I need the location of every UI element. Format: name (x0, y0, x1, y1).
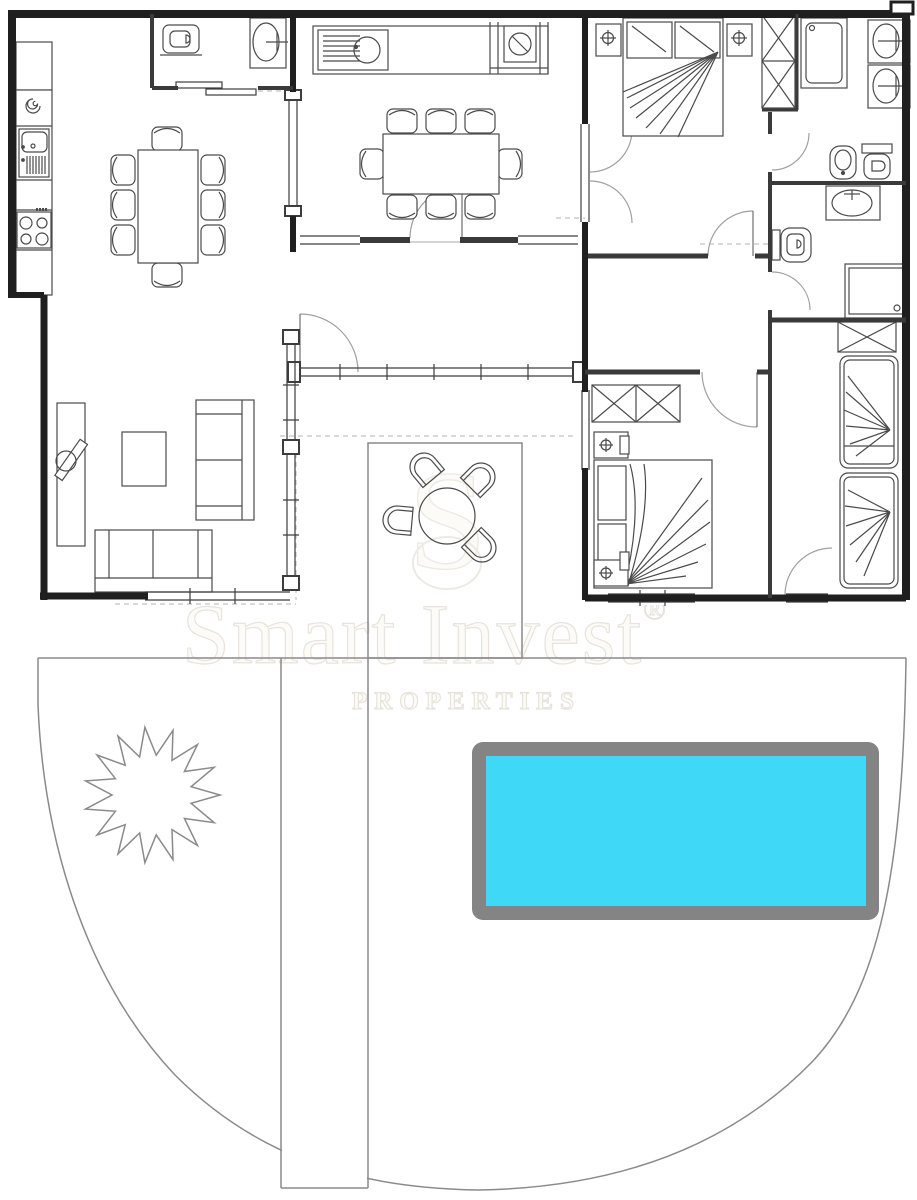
bedroom2-door (702, 372, 757, 427)
toilet-top-icon (862, 144, 892, 179)
patio-door (300, 314, 358, 372)
nightstand-left (596, 24, 621, 56)
doors (300, 130, 832, 595)
dining-table (138, 150, 198, 263)
shower-icon (801, 18, 847, 88)
kitchen-counter (16, 42, 52, 295)
master-double-door (590, 130, 632, 223)
counter-middle (313, 22, 548, 74)
swimming-pool (472, 742, 879, 920)
toilet-middle-icon (772, 228, 811, 262)
nightstand2-top (594, 432, 629, 458)
single-bed-1 (840, 356, 898, 468)
master-entry-door (708, 211, 753, 256)
dining-set-middle (360, 109, 522, 219)
wash-basin-icon (250, 18, 288, 68)
wardrobe-kids (838, 322, 896, 352)
shower-middle-icon (845, 264, 907, 318)
wc-fixtures (160, 18, 288, 68)
walkway (281, 658, 368, 1188)
floor-plan-drawing (0, 0, 917, 1200)
bedroom2-furniture (592, 385, 712, 588)
bathroom-top-door (772, 133, 809, 170)
vanity-icon (826, 186, 880, 220)
kitchen-sink-icon (19, 129, 49, 177)
sofa-right (196, 400, 254, 520)
floor-plan-canvas: S Smart Invest® PROPERTIES (0, 0, 917, 1200)
bathroom-top-fixtures (801, 18, 910, 179)
coffee-table (122, 432, 166, 486)
toilet-icon (160, 25, 202, 55)
window-hall-south (288, 362, 585, 382)
wardrobe-master (762, 15, 795, 108)
kids-room-door (785, 548, 832, 595)
bathroom-middle-fixtures (772, 186, 907, 318)
round-table (419, 488, 475, 544)
window-partition (285, 90, 301, 216)
window-bedroom2-west (579, 390, 591, 470)
dining-table-2 (383, 134, 499, 194)
tree-icon (86, 727, 221, 862)
bathroom-middle-door (772, 272, 810, 310)
window-master-west (581, 124, 589, 222)
cooktop-icon (17, 208, 51, 248)
master-bedroom-furniture (596, 15, 795, 137)
sofa-bottom (95, 530, 212, 592)
furniture (16, 15, 910, 592)
pool-water (486, 756, 866, 906)
wardrobe-bedroom2 (592, 385, 680, 422)
watermark-shield (413, 537, 481, 589)
kids-room-furniture (838, 322, 898, 588)
sliding-door (176, 82, 256, 95)
counter-sink-icon (318, 30, 388, 70)
window-dining-south (300, 236, 578, 244)
patio-paving (368, 443, 522, 658)
patio-furniture (382, 447, 502, 568)
living-room-furniture (55, 400, 254, 592)
single-bed-2 (840, 473, 898, 588)
dining-set-left (111, 127, 225, 287)
bidet-icon (830, 146, 856, 179)
nightstand-right (727, 24, 752, 56)
